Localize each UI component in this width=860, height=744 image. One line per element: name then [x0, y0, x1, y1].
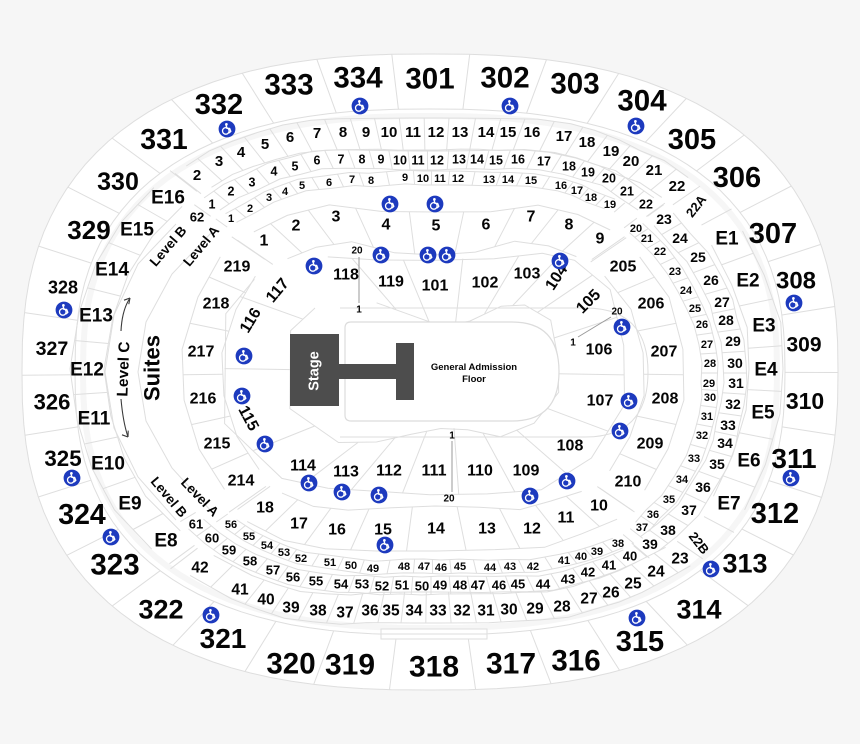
svg-text:62: 62 [190, 210, 204, 225]
svg-text:13: 13 [452, 152, 466, 166]
svg-text:3: 3 [215, 153, 223, 170]
svg-text:3: 3 [249, 175, 256, 189]
svg-text:6: 6 [326, 177, 332, 189]
svg-text:38: 38 [660, 522, 676, 538]
svg-text:217: 217 [188, 344, 215, 361]
svg-text:16: 16 [524, 124, 541, 141]
svg-text:319: 319 [325, 649, 375, 682]
svg-text:20: 20 [443, 494, 455, 505]
svg-text:31: 31 [477, 602, 495, 619]
svg-text:329: 329 [67, 215, 110, 245]
svg-text:218: 218 [203, 296, 230, 313]
svg-text:328: 328 [48, 277, 78, 297]
svg-text:11: 11 [405, 124, 421, 141]
svg-text:33: 33 [720, 417, 736, 433]
svg-text:25: 25 [624, 575, 642, 592]
svg-text:108: 108 [557, 438, 584, 455]
svg-text:E15: E15 [120, 220, 154, 241]
svg-text:13: 13 [483, 174, 495, 186]
svg-text:323: 323 [90, 548, 139, 581]
svg-text:37: 37 [681, 502, 697, 518]
svg-text:324: 324 [58, 499, 106, 531]
svg-text:209: 209 [637, 436, 664, 453]
svg-text:45: 45 [454, 561, 466, 573]
svg-text:305: 305 [668, 124, 716, 156]
svg-text:29: 29 [703, 378, 715, 390]
svg-text:23: 23 [669, 266, 681, 278]
svg-text:29: 29 [526, 600, 544, 617]
svg-text:9: 9 [596, 231, 605, 248]
svg-text:18: 18 [579, 134, 596, 151]
svg-text:40: 40 [257, 591, 274, 608]
svg-text:207: 207 [651, 344, 678, 361]
svg-text:16: 16 [555, 180, 567, 192]
svg-text:47: 47 [471, 578, 485, 593]
svg-text:E16: E16 [151, 188, 185, 209]
svg-text:206: 206 [638, 296, 665, 313]
svg-text:12: 12 [428, 124, 445, 141]
svg-text:8: 8 [368, 175, 374, 187]
svg-text:26: 26 [696, 319, 708, 331]
svg-text:11: 11 [434, 173, 446, 185]
svg-text:110: 110 [467, 463, 493, 480]
svg-text:4: 4 [271, 164, 278, 178]
svg-text:19: 19 [603, 143, 620, 160]
svg-text:35: 35 [709, 456, 725, 472]
svg-text:12: 12 [452, 173, 464, 185]
svg-text:113: 113 [333, 464, 359, 481]
svg-text:43: 43 [504, 561, 516, 573]
svg-text:8: 8 [565, 217, 574, 234]
svg-text:304: 304 [617, 84, 667, 117]
svg-text:16: 16 [511, 152, 525, 166]
svg-text:103: 103 [514, 266, 541, 283]
svg-text:331: 331 [140, 124, 188, 156]
svg-text:E14: E14 [95, 260, 129, 281]
svg-text:10: 10 [381, 124, 398, 141]
svg-text:208: 208 [652, 391, 679, 408]
svg-text:49: 49 [433, 578, 447, 593]
svg-text:327: 327 [36, 338, 69, 360]
svg-text:15: 15 [374, 522, 392, 539]
svg-text:1: 1 [356, 305, 362, 316]
svg-text:11: 11 [558, 510, 575, 527]
svg-text:45: 45 [511, 577, 525, 592]
svg-text:52: 52 [375, 579, 389, 594]
svg-text:31: 31 [701, 411, 713, 423]
svg-text:112: 112 [376, 463, 402, 480]
svg-text:39: 39 [642, 536, 658, 552]
svg-text:49: 49 [367, 563, 379, 575]
svg-text:38: 38 [612, 538, 624, 550]
svg-text:60: 60 [205, 531, 219, 546]
svg-text:56: 56 [225, 519, 237, 531]
svg-text:34: 34 [405, 602, 423, 619]
svg-text:28: 28 [553, 598, 571, 615]
svg-text:17: 17 [537, 154, 551, 168]
svg-text:34: 34 [717, 435, 733, 451]
svg-text:41: 41 [602, 558, 616, 573]
svg-text:307: 307 [749, 218, 797, 250]
svg-text:311: 311 [771, 443, 816, 474]
svg-text:210: 210 [615, 474, 642, 491]
svg-text:7: 7 [338, 152, 345, 166]
svg-text:321: 321 [200, 623, 247, 654]
svg-text:36: 36 [695, 479, 711, 495]
svg-text:102: 102 [472, 275, 499, 292]
svg-text:20: 20 [611, 307, 623, 318]
svg-text:23: 23 [671, 550, 689, 567]
svg-text:12: 12 [523, 521, 541, 538]
svg-text:11: 11 [411, 153, 424, 167]
svg-text:3: 3 [266, 192, 272, 204]
svg-text:9: 9 [402, 172, 408, 184]
svg-text:28: 28 [704, 358, 716, 370]
svg-text:106: 106 [586, 342, 613, 359]
svg-text:Stage: Stage [307, 351, 323, 391]
svg-text:109: 109 [513, 463, 540, 480]
svg-text:55: 55 [309, 574, 323, 589]
svg-text:7: 7 [349, 174, 355, 186]
svg-text:E11: E11 [78, 409, 111, 430]
svg-text:48: 48 [453, 578, 467, 593]
svg-text:6: 6 [286, 129, 294, 146]
svg-text:51: 51 [324, 557, 336, 569]
svg-text:114: 114 [290, 458, 316, 475]
svg-text:18: 18 [256, 500, 274, 517]
svg-text:59: 59 [222, 543, 236, 558]
svg-text:53: 53 [278, 547, 290, 559]
svg-text:10: 10 [590, 498, 608, 515]
svg-text:303: 303 [550, 67, 599, 100]
svg-text:14: 14 [502, 174, 515, 186]
svg-text:15: 15 [500, 124, 517, 141]
svg-text:42: 42 [527, 561, 539, 573]
svg-text:22: 22 [639, 197, 653, 211]
svg-text:215: 215 [204, 436, 231, 453]
svg-text:38: 38 [309, 602, 327, 619]
svg-text:E13: E13 [79, 306, 113, 327]
svg-text:26: 26 [703, 272, 719, 288]
svg-text:5: 5 [261, 136, 269, 153]
svg-text:306: 306 [713, 162, 761, 194]
svg-text:21: 21 [646, 162, 663, 179]
svg-text:326: 326 [34, 390, 71, 415]
svg-text:301: 301 [405, 62, 454, 95]
svg-text:15: 15 [525, 175, 537, 187]
svg-text:4: 4 [382, 217, 391, 234]
svg-text:107: 107 [587, 393, 614, 410]
svg-text:43: 43 [561, 572, 575, 587]
svg-text:5: 5 [299, 180, 305, 192]
svg-text:42: 42 [581, 565, 595, 580]
svg-text:46: 46 [435, 562, 447, 574]
svg-text:44: 44 [536, 577, 551, 592]
svg-text:20: 20 [623, 153, 640, 170]
svg-text:50: 50 [415, 579, 429, 594]
svg-text:36: 36 [647, 509, 659, 521]
svg-text:27: 27 [701, 339, 713, 351]
svg-text:20: 20 [602, 171, 616, 185]
svg-text:10: 10 [417, 173, 429, 185]
svg-text:17: 17 [571, 185, 583, 197]
svg-text:51: 51 [395, 578, 409, 593]
svg-text:2: 2 [228, 184, 235, 198]
svg-text:22: 22 [654, 246, 666, 258]
svg-text:26: 26 [602, 584, 620, 601]
svg-text:14: 14 [470, 152, 484, 166]
svg-text:25: 25 [690, 249, 706, 265]
svg-text:E3: E3 [752, 316, 775, 337]
svg-text:E5: E5 [751, 403, 775, 424]
svg-text:E2: E2 [736, 271, 759, 292]
svg-text:14: 14 [478, 124, 495, 141]
svg-text:23: 23 [656, 211, 672, 227]
svg-text:9: 9 [362, 124, 370, 141]
svg-text:17: 17 [556, 128, 573, 145]
svg-text:50: 50 [345, 560, 357, 572]
svg-text:310: 310 [786, 388, 824, 414]
svg-text:6: 6 [482, 217, 491, 234]
svg-text:55: 55 [243, 531, 255, 543]
svg-text:56: 56 [286, 570, 300, 585]
svg-text:37: 37 [336, 604, 353, 621]
svg-text:33: 33 [429, 602, 447, 619]
svg-text:216: 216 [190, 391, 217, 408]
svg-text:25: 25 [689, 303, 701, 315]
svg-text:39: 39 [282, 599, 300, 616]
svg-text:27: 27 [714, 294, 730, 310]
svg-text:330: 330 [97, 168, 139, 196]
svg-text:322: 322 [138, 595, 183, 625]
svg-text:4: 4 [282, 186, 289, 198]
svg-text:40: 40 [623, 549, 637, 564]
svg-text:332: 332 [195, 89, 243, 121]
svg-text:13: 13 [478, 521, 496, 538]
svg-text:2: 2 [247, 203, 253, 215]
svg-text:32: 32 [725, 396, 741, 412]
svg-text:316: 316 [551, 644, 600, 677]
svg-text:20: 20 [351, 246, 363, 257]
svg-text:1: 1 [449, 431, 455, 442]
svg-text:219: 219 [224, 259, 251, 276]
svg-text:44: 44 [484, 562, 497, 574]
svg-text:317: 317 [486, 648, 536, 681]
svg-text:21: 21 [620, 184, 634, 198]
svg-text:24: 24 [680, 285, 693, 297]
svg-text:52: 52 [295, 553, 307, 565]
svg-text:Floor: Floor [462, 374, 486, 385]
svg-text:E8: E8 [154, 531, 177, 552]
svg-text:61: 61 [189, 517, 203, 532]
svg-text:214: 214 [228, 473, 255, 490]
svg-text:54: 54 [261, 540, 274, 552]
svg-text:Suites: Suites [140, 335, 165, 401]
svg-text:28: 28 [718, 312, 734, 328]
svg-text:E6: E6 [737, 451, 760, 472]
svg-text:24: 24 [672, 230, 688, 246]
svg-text:32: 32 [453, 602, 470, 619]
svg-text:31: 31 [728, 375, 744, 391]
svg-text:18: 18 [562, 159, 576, 173]
svg-text:40: 40 [575, 551, 587, 563]
svg-text:4: 4 [237, 144, 246, 161]
svg-text:333: 333 [264, 68, 313, 101]
svg-text:E7: E7 [717, 494, 740, 515]
svg-text:118: 118 [333, 267, 359, 284]
svg-text:3: 3 [332, 209, 341, 226]
svg-text:30: 30 [704, 392, 716, 404]
svg-text:32: 32 [696, 430, 708, 442]
svg-text:Level C: Level C [114, 341, 133, 397]
svg-text:57: 57 [266, 563, 280, 578]
svg-text:16: 16 [328, 522, 346, 539]
svg-text:42: 42 [191, 559, 208, 576]
svg-text:1: 1 [228, 213, 234, 225]
svg-text:10: 10 [393, 153, 407, 167]
svg-text:13: 13 [452, 124, 469, 141]
svg-text:12: 12 [430, 153, 444, 167]
svg-text:35: 35 [382, 602, 400, 619]
svg-text:6: 6 [314, 153, 321, 167]
svg-text:35: 35 [663, 494, 675, 506]
svg-text:33: 33 [688, 453, 700, 465]
svg-text:36: 36 [361, 602, 379, 619]
svg-text:314: 314 [676, 595, 721, 625]
svg-text:E10: E10 [91, 454, 125, 475]
svg-text:E12: E12 [70, 360, 104, 381]
svg-text:29: 29 [725, 333, 741, 349]
svg-text:39: 39 [591, 546, 603, 558]
svg-text:19: 19 [581, 165, 595, 179]
svg-text:2: 2 [193, 167, 201, 184]
svg-text:2: 2 [292, 218, 301, 235]
svg-text:7: 7 [313, 125, 321, 142]
svg-text:320: 320 [266, 647, 315, 680]
svg-text:General Admission: General Admission [431, 362, 517, 373]
svg-text:1: 1 [209, 197, 216, 211]
svg-text:5: 5 [292, 159, 299, 173]
svg-text:15: 15 [489, 153, 503, 167]
svg-text:309: 309 [786, 333, 821, 356]
svg-text:18: 18 [585, 192, 597, 204]
svg-text:E4: E4 [754, 360, 778, 381]
svg-text:8: 8 [359, 152, 366, 166]
svg-text:19: 19 [604, 199, 616, 211]
svg-text:21: 21 [641, 233, 653, 245]
svg-text:7: 7 [527, 209, 536, 226]
svg-text:5: 5 [432, 218, 441, 235]
svg-text:47: 47 [418, 561, 430, 573]
svg-text:53: 53 [355, 577, 369, 592]
svg-text:E9: E9 [118, 494, 141, 515]
svg-text:14: 14 [427, 521, 445, 538]
svg-text:34: 34 [676, 474, 689, 486]
svg-text:315: 315 [616, 626, 664, 658]
svg-text:302: 302 [480, 61, 529, 94]
svg-text:17: 17 [290, 516, 308, 533]
svg-text:1: 1 [260, 233, 269, 250]
svg-text:318: 318 [409, 651, 459, 684]
svg-text:325: 325 [44, 446, 81, 471]
svg-text:30: 30 [500, 601, 517, 618]
svg-text:41: 41 [558, 555, 570, 567]
svg-text:1: 1 [570, 338, 576, 349]
svg-text:E1: E1 [715, 229, 739, 250]
svg-text:313: 313 [722, 549, 767, 579]
svg-text:48: 48 [398, 561, 410, 573]
svg-text:41: 41 [231, 581, 249, 598]
svg-text:111: 111 [422, 463, 447, 480]
svg-text:27: 27 [580, 590, 597, 607]
svg-text:30: 30 [727, 355, 743, 371]
svg-text:205: 205 [610, 259, 637, 276]
svg-text:119: 119 [378, 274, 404, 291]
svg-text:334: 334 [333, 61, 383, 94]
svg-text:24: 24 [647, 563, 665, 580]
svg-text:46: 46 [492, 578, 506, 593]
svg-text:54: 54 [334, 577, 349, 592]
svg-text:308: 308 [776, 267, 816, 294]
svg-text:8: 8 [339, 124, 347, 141]
svg-text:58: 58 [243, 554, 257, 569]
svg-text:101: 101 [422, 278, 449, 295]
svg-text:312: 312 [751, 498, 799, 530]
svg-text:37: 37 [636, 522, 648, 534]
svg-text:9: 9 [378, 152, 385, 166]
svg-text:22: 22 [669, 178, 686, 195]
